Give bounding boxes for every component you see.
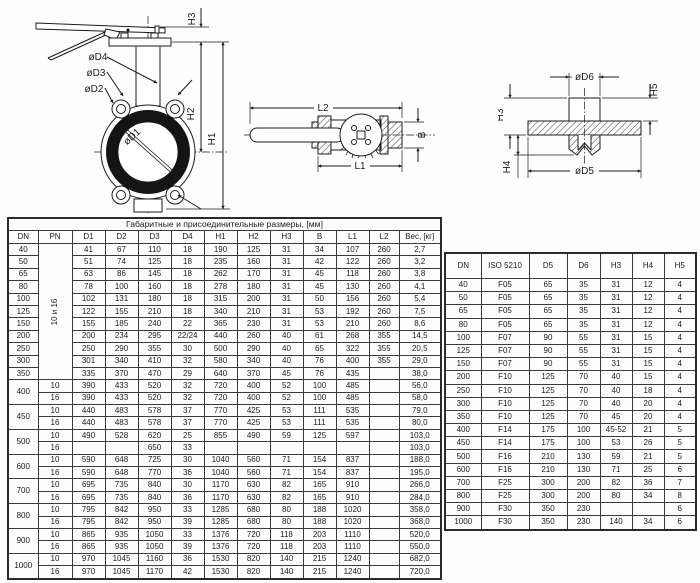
dim-cell: 52: [270, 380, 303, 392]
dim-cell: 37: [171, 417, 204, 429]
dim-cell: 67: [105, 244, 138, 256]
dn-cell: 250: [445, 384, 481, 397]
dim-cell: 720: [204, 380, 237, 392]
dim-cell: 111: [303, 417, 336, 429]
dim-cell: 295: [138, 330, 171, 342]
table-row: 1251221552101834021031531922607,5: [8, 305, 441, 317]
dim-cell: 122: [72, 305, 105, 317]
table-row: 600F1621013071256: [445, 463, 696, 476]
dim-cell: 648: [105, 467, 138, 479]
dim-cell: 118: [270, 528, 303, 540]
dn-cell: 300: [8, 355, 38, 367]
dim-cell: 111: [303, 405, 336, 417]
dim-cell: 1376: [204, 528, 237, 540]
datasheet-page: øD4 øD3 øD2 øD1 H3 H2 H1: [0, 0, 700, 583]
dim-cell: 35: [567, 305, 600, 318]
dim-cell: 145: [138, 268, 171, 280]
dim-cell: 34: [303, 244, 336, 256]
table-row: 1000F30350230140346: [445, 516, 696, 530]
dim-cell: 5: [664, 424, 696, 437]
dim-cell: 170: [237, 268, 270, 280]
table-row: 40F05653531124: [445, 279, 696, 292]
dim-cell: 80: [270, 516, 303, 528]
dim-cell: 78: [72, 281, 105, 293]
dim-cell: 200: [237, 293, 270, 305]
dn-cell: 600: [8, 454, 38, 479]
dim-cell: 39: [171, 516, 204, 528]
column-header: H2: [237, 231, 270, 244]
dim-cell: 103,0: [399, 442, 441, 454]
dim-cell: 842: [105, 516, 138, 528]
dim-cell: 40: [270, 330, 303, 342]
table-row: 40010390433520327204005210048556,0: [8, 380, 441, 392]
dim-cell: 355: [369, 330, 399, 342]
dim-cell: 12: [632, 292, 664, 305]
table-row: 1659064877036104056071154837195,0: [8, 467, 441, 479]
pn-cell: 10: [38, 405, 72, 417]
dim-cell: [336, 442, 369, 454]
dim-cell: 125: [529, 410, 567, 423]
pn-cell: 10: [38, 429, 72, 441]
column-header: PN: [38, 231, 72, 244]
dn-cell: 125: [8, 305, 38, 317]
dim-cell: 210: [529, 463, 567, 476]
dim-cell: 160: [138, 281, 171, 293]
dim-cell: 80: [600, 490, 632, 503]
dn-cell: 400: [445, 424, 481, 437]
dim-cell: 390: [72, 380, 105, 392]
stem-square: [357, 131, 365, 139]
dim-cell: 180: [237, 281, 270, 293]
dim-cell: 4: [664, 305, 696, 318]
dn-cell: 600: [445, 463, 481, 476]
dim-cell: 76: [303, 355, 336, 367]
dim-cell: 156: [336, 293, 369, 305]
dim-cell: 34: [632, 490, 664, 503]
dim-cell: 682,0: [399, 553, 441, 565]
dim-cell: 122: [336, 256, 369, 268]
dim-cell: 1170: [138, 566, 171, 579]
dim-cell: 31: [600, 305, 632, 318]
column-header: DN: [445, 253, 481, 279]
dim-cell: 36: [171, 491, 204, 503]
dn-cell: 200: [445, 371, 481, 384]
table-row: 500104905286202585549059125597103,0: [8, 429, 441, 441]
dim-cell: 350: [529, 516, 567, 530]
dim-cell: 140: [270, 553, 303, 565]
dim-cell: [369, 442, 399, 454]
dim-cell: 15: [632, 331, 664, 344]
dim-cell: [369, 380, 399, 392]
table-row: 16795842950391285680801881020368,0: [8, 516, 441, 528]
label-h3: H3: [187, 12, 198, 25]
dim-cell: 6: [664, 463, 696, 476]
dim-cell: 15: [632, 358, 664, 371]
label-l1: L1: [354, 161, 366, 172]
pn-cell: 10: [38, 553, 72, 565]
column-header: B: [303, 231, 336, 244]
dim-cell: 720: [237, 541, 270, 553]
dim-cell: 240: [138, 318, 171, 330]
dim-cell: 795: [72, 516, 105, 528]
dim-cell: 4: [664, 397, 696, 410]
dim-cell: 203: [303, 541, 336, 553]
dim-cell: 65: [529, 318, 567, 331]
table-row: 16970104511704215308201402151240720,0: [8, 566, 441, 579]
dn-cell: 40: [445, 279, 481, 292]
dim-cell: 433: [105, 380, 138, 392]
dim-cell: 260: [369, 256, 399, 268]
table-row: 450F1417510053265: [445, 437, 696, 450]
column-header: Вес, [кг]: [399, 231, 441, 244]
dim-cell: 70: [567, 410, 600, 423]
dim-cell: 590: [72, 454, 105, 466]
dim-cell: 140: [270, 566, 303, 579]
dim-cell: 36: [171, 553, 204, 565]
dim-cell: 485: [336, 392, 369, 404]
dim-cell: 300: [529, 476, 567, 489]
dim-cell: 680: [237, 504, 270, 516]
dn-cell: 900: [8, 528, 38, 553]
dim-cell: 210: [237, 305, 270, 317]
column-header: H5: [664, 253, 696, 279]
dim-cell: 40: [600, 371, 632, 384]
dim-cell: [369, 429, 399, 441]
dim-cell: 55: [567, 344, 600, 357]
dim-cell: 1110: [336, 528, 369, 540]
pn-cell: 16: [38, 417, 72, 429]
dim-cell: 188: [303, 516, 336, 528]
top-view-drawing: L2 L1 B: [228, 62, 443, 202]
dim-cell: 368,0: [399, 516, 441, 528]
dim-cell: 3,2: [399, 256, 441, 268]
dn-cell: 1000: [8, 553, 38, 578]
dim-cell: 1050: [138, 541, 171, 553]
dim-cell: 490: [237, 429, 270, 441]
dim-cell: [369, 516, 399, 528]
table-row: 7001069573584030117063082165910266,0: [8, 479, 441, 491]
dim-cell: 74: [105, 256, 138, 268]
label-b: B: [417, 131, 428, 138]
dim-cell: [105, 442, 138, 454]
label-d6: øD6: [575, 72, 594, 83]
dim-cell: 80: [270, 504, 303, 516]
table-row: 1669573584036117063082165910284,0: [8, 491, 441, 503]
table-row: 1001021311801831520031501562605,4: [8, 293, 441, 305]
dim-cell: 340: [204, 305, 237, 317]
dim-cell: 4: [664, 318, 696, 331]
dim-cell: [72, 442, 105, 454]
dim-cell: 400: [336, 355, 369, 367]
dim-cell: 230: [567, 503, 600, 516]
dn-cell: 80: [445, 318, 481, 331]
dim-cell: 160: [237, 256, 270, 268]
dn-cell: 50: [445, 292, 481, 305]
dim-cell: 250: [72, 343, 105, 355]
dim-cell: 1020: [336, 504, 369, 516]
dim-cell: 910: [336, 491, 369, 503]
dim-cell: 110: [138, 244, 171, 256]
column-header: D4: [171, 231, 204, 244]
dim-cell: 1160: [138, 553, 171, 565]
dim-cell: 260: [369, 293, 399, 305]
table-row: 800F2530020080348: [445, 490, 696, 503]
dim-cell: 90: [529, 344, 567, 357]
iso-flange-cell: F30: [481, 503, 529, 516]
dim-cell: 865: [72, 528, 105, 540]
dim-cell: 8,6: [399, 318, 441, 330]
dim-cell: 735: [105, 479, 138, 491]
dim-cell: 315: [204, 293, 237, 305]
dim-cell: [369, 392, 399, 404]
dim-cell: [369, 491, 399, 503]
lever-handle: [36, 23, 165, 33]
dim-cell: 260: [369, 244, 399, 256]
main-table-title: Габаритные и присоединительные размеры, …: [8, 218, 441, 231]
dim-cell: 4: [664, 371, 696, 384]
dim-cell: [369, 553, 399, 565]
table-row: 65F05653531124: [445, 305, 696, 318]
dim-cell: 650: [138, 442, 171, 454]
dim-cell: 18: [171, 281, 204, 293]
dim-cell: 1285: [204, 504, 237, 516]
dim-cell: 4: [664, 292, 696, 305]
dim-cell: 31: [270, 281, 303, 293]
dim-cell: 322: [336, 343, 369, 355]
dim-cell: 42: [171, 566, 204, 579]
table-row: 25025029035530500290406532235520,5: [8, 343, 441, 355]
dim-cell: 935: [105, 528, 138, 540]
dim-cell: 55: [567, 358, 600, 371]
dim-cell: 71: [600, 463, 632, 476]
dim-cell: 203: [303, 528, 336, 540]
dim-cell: 837: [336, 454, 369, 466]
dim-cell: 735: [105, 491, 138, 503]
dim-cell: 31: [270, 318, 303, 330]
dim-cell: 140: [600, 516, 632, 530]
pn-cell: 10 и 16: [38, 244, 72, 380]
dim-cell: 180: [138, 293, 171, 305]
dn-cell: 900: [445, 503, 481, 516]
dim-cell: 18: [632, 384, 664, 397]
dim-cell: 290: [237, 343, 270, 355]
dn-cell: 125: [445, 344, 481, 357]
dn-cell: 65: [8, 268, 38, 280]
dim-cell: 370: [105, 367, 138, 379]
lever-handle-top: [250, 128, 344, 142]
dim-cell: [270, 442, 303, 454]
dim-cell: 18: [171, 244, 204, 256]
dim-cell: 720: [237, 528, 270, 540]
table-row: 250F101257040184: [445, 384, 696, 397]
dim-cell: 1045: [105, 566, 138, 579]
table-row: 350F101257045204: [445, 410, 696, 423]
table-row: 5051741251823516031421222603,2: [8, 256, 441, 268]
top-flange: [109, 38, 171, 46]
dim-cell: 210: [529, 450, 567, 463]
dim-cell: 590: [72, 467, 105, 479]
iso-flange-cell: F07: [481, 331, 529, 344]
dim-cell: 22/24: [171, 330, 204, 342]
table-row: 16390433520327204005210048558,0: [8, 392, 441, 404]
dim-cell: 18: [171, 268, 204, 280]
dim-cell: 25: [171, 429, 204, 441]
dim-cell: 45-52: [600, 424, 632, 437]
dim-cell: 290: [105, 343, 138, 355]
column-header: DN: [8, 231, 38, 244]
iso-flange-cell: F05: [481, 305, 529, 318]
column-header: L1: [336, 231, 369, 244]
dim-cell: 30: [171, 454, 204, 466]
dim-cell: 350: [529, 503, 567, 516]
dim-cell: 33: [171, 528, 204, 540]
dim-cell: 4: [664, 344, 696, 357]
dim-cell: 20,5: [399, 343, 441, 355]
table-row: 20020023429522/24440260406126835514,5: [8, 330, 441, 342]
dim-cell: 4: [664, 331, 696, 344]
dn-cell: 800: [8, 504, 38, 529]
dim-cell: 1170: [204, 491, 237, 503]
dim-cell: 300: [529, 490, 567, 503]
dim-cell: 820: [237, 566, 270, 579]
dim-cell: 53: [600, 437, 632, 450]
dim-cell: 125: [237, 244, 270, 256]
dim-cell: [600, 503, 632, 516]
dim-cell: 1530: [204, 553, 237, 565]
dim-cell: 820: [237, 553, 270, 565]
dim-cell: [369, 528, 399, 540]
dn-cell: 1000: [445, 516, 481, 530]
dim-cell: 5: [664, 437, 696, 450]
dim-cell: 31: [270, 305, 303, 317]
dim-cell: 340: [237, 355, 270, 367]
dim-cell: 365: [204, 318, 237, 330]
dim-cell: 118: [270, 541, 303, 553]
dim-cell: 33: [171, 442, 204, 454]
dim-cell: 1045: [105, 553, 138, 565]
iso-flange-cell: F10: [481, 410, 529, 423]
table-row: 30030134041032580340407640035529,0: [8, 355, 441, 367]
dim-cell: 865: [72, 541, 105, 553]
dim-cell: 770: [204, 417, 237, 429]
iso-flange-cell: F07: [481, 344, 529, 357]
dim-cell: 82: [270, 479, 303, 491]
dim-cell: 195,0: [399, 467, 441, 479]
dim-cell: 35: [567, 279, 600, 292]
dim-cell: 192: [336, 305, 369, 317]
table-row: 4010 и 1641671101819012531341072602,7: [8, 244, 441, 256]
dim-cell: 490: [72, 429, 105, 441]
pn-cell: 16: [38, 491, 72, 503]
dim-cell: 440: [72, 417, 105, 429]
dim-cell: 14,5: [399, 330, 441, 342]
table-row: 900F303502306: [445, 503, 696, 516]
dim-cell: 53: [270, 405, 303, 417]
dim-cell: 215: [303, 566, 336, 579]
dim-cell: 1530: [204, 566, 237, 579]
dim-cell: [369, 479, 399, 491]
dim-cell: 425: [237, 405, 270, 417]
dn-cell: 250: [8, 343, 38, 355]
dim-cell: 620: [138, 429, 171, 441]
dim-cell: 80,0: [399, 417, 441, 429]
dim-cell: 90: [529, 331, 567, 344]
front-view-drawing: øD4 øD3 øD2 øD1 H3 H2 H1: [8, 2, 233, 214]
dim-cell: 842: [105, 504, 138, 516]
dim-cell: 30: [171, 479, 204, 491]
dim-cell: 100: [567, 424, 600, 437]
dim-cell: 5: [664, 450, 696, 463]
dim-cell: 71: [270, 454, 303, 466]
label-h4: H4: [502, 160, 513, 173]
dn-cell: 500: [8, 429, 38, 454]
dim-cell: 53: [303, 305, 336, 317]
dim-cell: 400: [237, 380, 270, 392]
dim-cell: 32: [171, 380, 204, 392]
dim-cell: 284,0: [399, 491, 441, 503]
dim-cell: 125: [529, 397, 567, 410]
dim-cell: 102: [72, 293, 105, 305]
dim-cell: 550,0: [399, 541, 441, 553]
iso-flange-cell: F16: [481, 463, 529, 476]
table-row: 80F05653531124: [445, 318, 696, 331]
pn-vertical-label: 10 и 16: [51, 298, 59, 325]
dim-cell: 234: [105, 330, 138, 342]
dim-cell: 82: [600, 476, 632, 489]
dim-cell: 34: [632, 516, 664, 530]
dim-cell: 230: [567, 516, 600, 530]
dim-cell: 440: [72, 405, 105, 417]
dim-cell: 52: [270, 392, 303, 404]
dim-cell: 100: [303, 380, 336, 392]
table-row: 400F1417510045-52215: [445, 424, 696, 437]
dim-cell: 210: [336, 318, 369, 330]
label-l2: L2: [317, 103, 329, 114]
dim-cell: 65: [529, 292, 567, 305]
dim-cell: 200: [567, 476, 600, 489]
dim-cell: 39: [171, 541, 204, 553]
dim-cell: 65: [303, 343, 336, 355]
iso-flange-cell: F14: [481, 437, 529, 450]
table-row: 1665033103,0: [8, 442, 441, 454]
dim-cell: 55: [567, 331, 600, 344]
dim-cell: 12: [632, 305, 664, 318]
label-d2: øD2: [85, 84, 104, 95]
dim-cell: 188: [303, 504, 336, 516]
dn-cell: 450: [8, 405, 38, 430]
dim-cell: 648: [105, 454, 138, 466]
dim-cell: 35: [567, 292, 600, 305]
pn-cell: 16: [38, 467, 72, 479]
dim-cell: 520: [138, 380, 171, 392]
pn-cell: 10: [38, 528, 72, 540]
dim-cell: 40: [270, 343, 303, 355]
dim-cell: 355: [369, 355, 399, 367]
label-d5: øD5: [575, 166, 594, 177]
dim-cell: 1285: [204, 516, 237, 528]
dim-cell: 1020: [336, 516, 369, 528]
column-header: D5: [529, 253, 567, 279]
dn-cell: 700: [445, 476, 481, 489]
dn-cell: 700: [8, 479, 38, 504]
dim-cell: 25: [632, 463, 664, 476]
dim-cell: [632, 503, 664, 516]
dn-cell: 350: [8, 367, 38, 379]
table-row: 16440483578377704255311153580,0: [8, 417, 441, 429]
dim-cell: 500: [204, 343, 237, 355]
pn-cell: 16: [38, 516, 72, 528]
dim-cell: 56,0: [399, 380, 441, 392]
